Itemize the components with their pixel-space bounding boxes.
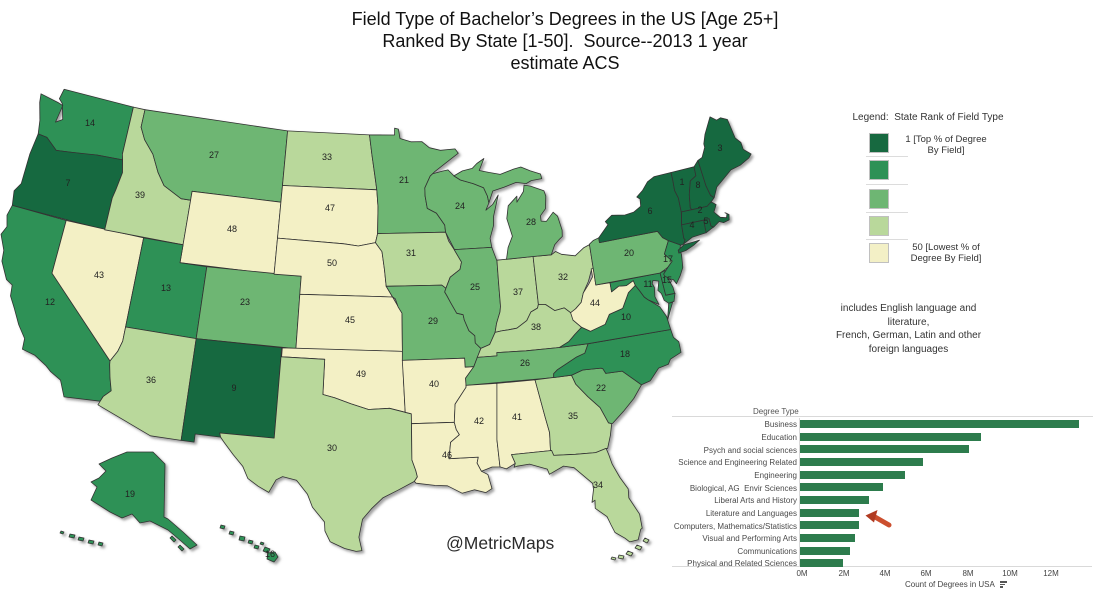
svg-text:24: 24 (455, 201, 465, 211)
svg-text:50: 50 (327, 258, 337, 268)
svg-text:43: 43 (94, 270, 104, 280)
svg-text:23: 23 (240, 297, 250, 307)
svg-text:6: 6 (647, 206, 652, 216)
svg-text:3: 3 (717, 143, 722, 153)
svg-text:7: 7 (65, 178, 70, 188)
svg-text:12: 12 (45, 297, 55, 307)
svg-text:46: 46 (442, 450, 452, 460)
svg-text:9: 9 (231, 383, 236, 393)
svg-text:17: 17 (663, 254, 673, 264)
svg-text:1: 1 (679, 177, 684, 187)
svg-text:34: 34 (593, 480, 603, 490)
svg-text:26: 26 (520, 358, 530, 368)
svg-text:49: 49 (356, 369, 366, 379)
svg-text:31: 31 (406, 248, 416, 258)
svg-text:48: 48 (227, 224, 237, 234)
svg-text:38: 38 (531, 322, 541, 332)
svg-text:30: 30 (327, 443, 337, 453)
svg-text:42: 42 (474, 416, 484, 426)
svg-text:22: 22 (596, 383, 606, 393)
svg-text:15: 15 (662, 275, 672, 285)
svg-text:33: 33 (322, 152, 332, 162)
svg-text:16: 16 (265, 549, 275, 559)
svg-text:2: 2 (697, 205, 702, 215)
svg-text:19: 19 (125, 489, 135, 499)
svg-text:40: 40 (429, 379, 439, 389)
svg-text:45: 45 (345, 315, 355, 325)
svg-text:4: 4 (689, 220, 694, 230)
svg-text:5: 5 (703, 216, 708, 226)
svg-text:25: 25 (470, 282, 480, 292)
svg-text:13: 13 (161, 283, 171, 293)
svg-text:36: 36 (146, 375, 156, 385)
svg-text:35: 35 (568, 411, 578, 421)
svg-text:28: 28 (526, 217, 536, 227)
svg-text:32: 32 (558, 272, 568, 282)
svg-text:44: 44 (590, 298, 600, 308)
svg-text:10: 10 (621, 312, 631, 322)
svg-text:47: 47 (325, 203, 335, 213)
svg-text:18: 18 (620, 349, 630, 359)
svg-text:20: 20 (624, 248, 634, 258)
svg-text:41: 41 (512, 412, 522, 422)
svg-text:27: 27 (209, 150, 219, 160)
svg-text:39: 39 (135, 190, 145, 200)
svg-text:8: 8 (695, 180, 700, 190)
svg-text:37: 37 (513, 287, 523, 297)
svg-text:29: 29 (428, 316, 438, 326)
svg-text:21: 21 (399, 175, 409, 185)
svg-text:14: 14 (85, 118, 95, 128)
svg-text:11: 11 (643, 279, 652, 289)
